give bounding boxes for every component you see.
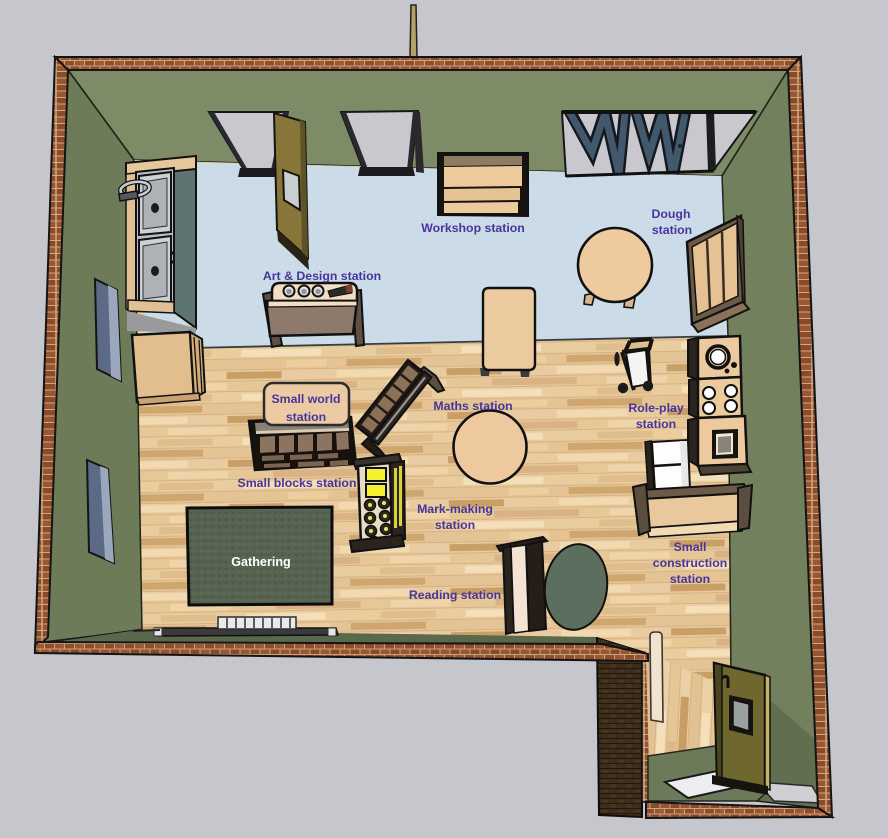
svg-text:Gathering: Gathering [231,555,290,569]
svg-text:Art & Design station: Art & Design station [263,269,381,283]
svg-text:Small blocks station: Small blocks station [238,476,357,490]
svg-text:Workshop station: Workshop station [421,221,525,235]
svg-text:station: station [435,518,475,532]
svg-text:station: station [652,223,692,237]
svg-text:Small world: Small world [271,392,340,406]
svg-text:Maths station: Maths station [433,399,512,413]
svg-text:Role-play: Role-play [628,401,684,415]
svg-text:station: station [670,572,710,586]
svg-text:station: station [286,410,326,424]
svg-text:Small: Small [674,540,707,554]
svg-text:Reading station: Reading station [409,588,501,602]
svg-text:station: station [636,417,676,431]
svg-text:construction: construction [653,556,727,570]
svg-text:Mark-making: Mark-making [417,502,493,516]
svg-text:Dough: Dough [652,207,691,221]
